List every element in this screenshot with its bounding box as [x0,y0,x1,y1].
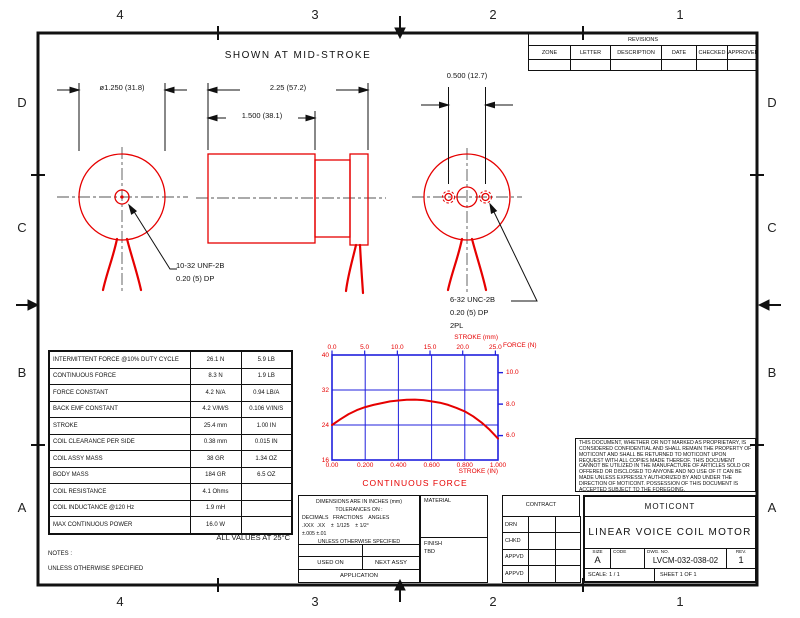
tolerance-line: ±.005 ±.01 [299,530,419,538]
signoff-empty-cell [529,566,556,582]
revisions-title: REVISIONS [529,34,758,46]
finish-value: TBD [424,548,484,556]
chart-bottom-tick: 0.200 [350,462,380,469]
contract-label: CONTRACT [502,495,580,517]
lead-wire [472,239,486,290]
spec-cell: COIL INDUCTANCE @120 Hz [49,500,190,517]
spec-cell: MAX CONTINUOUS POWER [49,517,190,534]
chart-bottom-tick: 0.800 [450,462,480,469]
chart-right-tick: 6.0 [506,432,530,439]
revisions-empty-cell [697,60,728,71]
signoff-empty-cell [556,549,581,565]
revisions-col-header: DESCRIPTION [611,46,662,60]
revisions-empty-cell [611,60,662,71]
chart-frame [332,355,498,460]
chart-top-tick: 10.0 [385,344,409,351]
signoff-empty-cell [529,549,556,565]
chart-left-tick: 16 [303,457,329,464]
spec-cell [241,500,292,517]
spec-cell: 38 GR [190,451,241,468]
spec-cell: 6.5 OZ [241,467,292,484]
spec-cell [241,484,292,501]
spec-row: FORCE CONSTANT4.2 N/A0.94 LB/A [49,385,292,402]
notes-heading: NOTES : [48,551,72,558]
revisions-empty-cell [728,60,758,71]
spec-cell: 1.9 mH [190,500,241,517]
spec-cell: 0.38 mm [190,434,241,451]
spec-cell: COIL CLEARANCE PER SIDE [49,434,190,451]
signoff-label: CHKD [503,533,529,549]
lead-wire [127,239,141,290]
spec-cell: BACK EMF CONSTANT [49,401,190,418]
chart-bottom-tick: 1.000 [483,462,513,469]
tolerance-line: DIMENSIONS ARE IN INCHES (mm) [299,498,419,506]
zone-label-bottom-4: 4 [108,595,132,610]
application-empty-row [299,544,419,556]
contract-signoff-table: DRNCHKDAPPVDAPPVD [502,516,581,583]
chart-top-tick: 0.0 [320,344,344,351]
scale-value: 1 / 1 [609,572,620,578]
zone-label-right-B: B [760,366,784,381]
signoff-row: CHKD [503,533,581,549]
chart-right-tick: 8.0 [506,401,530,408]
sheet-field: SHEET 1 OF 1 [655,569,755,581]
spec-cell: 5.9 LB [241,351,292,368]
spec-table: INTERMITTENT FORCE @10% DUTY CYCLE26.1 N… [48,350,293,535]
revisions-col-header: DATE [662,46,697,60]
spec-row: COIL ASSY MASS38 GR1.34 OZ [49,451,292,468]
zone-label-right-C: C [760,221,784,236]
signoff-empty-cell [529,517,556,533]
spec-footnote: ALL VALUES AT 25°C [140,534,290,543]
spec-row: MAX CONTINUOUS POWER16.0 W [49,517,292,534]
application-label: APPLICATION [299,569,419,583]
spec-cell [241,517,292,534]
spec-row: COIL RESISTANCE4.1 Ohms [49,484,292,501]
view-note: SHOWN AT MID-STROKE [216,50,380,62]
callout-mount-thread: 6-32 UNC-2B [450,296,495,305]
spec-cell: CONTINUOUS FORCE [49,368,190,385]
zone-label-top-1: 1 [668,8,692,23]
zone-label-left-C: C [10,221,34,236]
drawing-title: LINEAR VOICE COIL MOTOR [585,517,755,549]
company-name: MOTICONT [585,497,755,517]
callout-shaft-thread: 10-32 UNF-2B [176,262,224,271]
chart-title: CONTINUOUS FORCE [332,479,498,489]
spec-row: CONTINUOUS FORCE8.3 N1.9 LB [49,368,292,385]
chart-bottom-tick: 0.600 [417,462,447,469]
spec-row: INTERMITTENT FORCE @10% DUTY CYCLE26.1 N… [49,351,292,368]
chart-right-tick: 10.0 [506,369,530,376]
signoff-row: APPVD [503,549,581,565]
callout-mount-thread: 0.20 (5) DP [450,309,488,318]
chart-bottom-tick: 0.400 [383,462,413,469]
spec-cell: 4.2 V/M/S [190,401,241,418]
notes-line: UNLESS OTHERWISE SPECIFIED [48,566,143,573]
chart-top-tick: 20.0 [451,344,475,351]
spec-cell: 0.015 IN [241,434,292,451]
material-block: MATERIAL FINISH TBD [420,495,488,583]
scale-field: SCALE: 1 / 1 [585,569,655,581]
tolerance-block: DIMENSIONS ARE IN INCHES (mm) TOLERANCES… [298,495,420,583]
drawing-sheet: SHOWN AT MID-STROKE ø1.250 (31.8) 2.25 (… [0,0,800,618]
lead-wire [346,245,356,291]
continuous-force-curve [332,400,498,439]
spec-row: COIL INDUCTANCE @120 Hz1.9 mH [49,500,292,517]
signoff-label: APPVD [503,566,529,582]
signoff-label: DRN [503,517,529,533]
spec-cell: 184 GR [190,467,241,484]
callout-mount-thread: 2PL [450,322,463,331]
lead-wire [103,239,117,290]
zone-label-right-A: A [760,501,784,516]
callout-shaft-thread: 0.20 (5) DP [176,275,214,284]
spec-cell: 25.4 mm [190,418,241,435]
signoff-label: APPVD [503,549,529,565]
chart-right-axis-label: FORCE (N) [503,342,541,349]
confidentiality-notice: THIS DOCUMENT, WHETHER OR NOT MARKED AS … [575,438,756,492]
signoff-empty-cell [556,533,581,549]
signoff-empty-cell [529,533,556,549]
chart-top-tick: 25.0 [483,344,507,351]
lead-wire [448,239,462,290]
zone-label-top-2: 2 [481,8,505,23]
signoff-row: DRN [503,517,581,533]
spec-cell: COIL ASSY MASS [49,451,190,468]
spec-cell: 4.1 Ohms [190,484,241,501]
zone-label-left-D: D [10,96,34,111]
zone-label-bottom-3: 3 [303,595,327,610]
revisions-col-header: LETTER [571,46,611,60]
revisions-table: REVISIONSZONELETTERDESCRIPTIONDATECHECKE… [528,33,758,71]
spec-cell: 0.106 V/IN/S [241,401,292,418]
spec-cell: COIL RESISTANCE [49,484,190,501]
spec-cell: 0.94 LB/A [241,385,292,402]
signoff-empty-cell [556,517,581,533]
spec-row: BODY MASS184 GR6.5 OZ [49,467,292,484]
zone-label-left-A: A [10,501,34,516]
revisions-col-header: ZONE [529,46,571,60]
zone-label-top-4: 4 [108,8,132,23]
revisions-empty-cell [529,60,571,71]
zone-label-left-B: B [10,366,34,381]
chart-left-tick: 24 [303,422,329,429]
title-block: MOTICONT LINEAR VOICE COIL MOTOR SIZE A … [583,495,757,583]
chart-top-tick: 5.0 [353,344,377,351]
spec-cell: FORCE CONSTANT [49,385,190,402]
tolerance-line: .XXX .XX ± 1/125 ± 1/2° [299,522,419,530]
dwg-no-value: LVCM-032-038-02 [645,555,726,566]
spec-cell: BODY MASS [49,467,190,484]
revisions-empty-cell [662,60,697,71]
zone-label-bottom-2: 2 [481,595,505,610]
spec-cell: 26.1 N [190,351,241,368]
chart-top-axis-label: STROKE (mm) [398,334,498,341]
spec-cell: 4.2 N/A [190,385,241,402]
tolerance-line: DECIMALS FRACTIONS ANGLES [299,514,419,522]
force-stroke-chart [332,351,503,461]
dim-hole-spacing: 0.500 (12.7) [417,72,517,81]
next-assy-label: NEXT ASSY [362,557,419,569]
revisions-empty-cell [571,60,611,71]
revisions-col-header: APPROVED [728,46,758,60]
side-view-body [208,154,368,293]
chart-left-tick: 32 [303,387,329,394]
spec-cell: 8.3 N [190,368,241,385]
used-on-label: USED ON [299,557,362,569]
finish-label: FINISH [424,540,484,548]
spec-cell: 1.34 OZ [241,451,292,468]
zone-label-top-3: 3 [303,8,327,23]
code-label: CODE [611,549,644,555]
spec-row: COIL CLEARANCE PER SIDE0.38 mm0.015 IN [49,434,292,451]
zone-label-bottom-1: 1 [668,595,692,610]
chart-left-tick: 40 [303,352,329,359]
zone-label-right-D: D [760,96,784,111]
spec-cell: 1.9 LB [241,368,292,385]
spec-cell: INTERMITTENT FORCE @10% DUTY CYCLE [49,351,190,368]
spec-row: BACK EMF CONSTANT4.2 V/M/S0.106 V/IN/S [49,401,292,418]
scale-label: SCALE: [588,572,608,578]
dim-flange-diameter: ø1.250 (31.8) [72,84,172,93]
spec-row: STROKE25.4 mm1.00 IN [49,418,292,435]
revisions-col-header: CHECKED [697,46,728,60]
tolerance-line: TOLERANCES ON : [299,506,419,514]
size-value: A [585,555,610,566]
material-label: MATERIAL [421,496,487,538]
chart-top-tick: 15.0 [418,344,442,351]
rev-value: 1 [727,555,755,566]
spec-cell: 1.00 IN [241,418,292,435]
dim-body-length: 1.500 (38.1) [212,112,312,121]
spec-cell: STROKE [49,418,190,435]
spec-cell: 16.0 W [190,517,241,534]
signoff-empty-cell [556,566,581,582]
signoff-row: APPVD [503,566,581,582]
lead-wire [360,245,363,293]
dim-overall-length: 2.25 (57.2) [238,84,338,93]
